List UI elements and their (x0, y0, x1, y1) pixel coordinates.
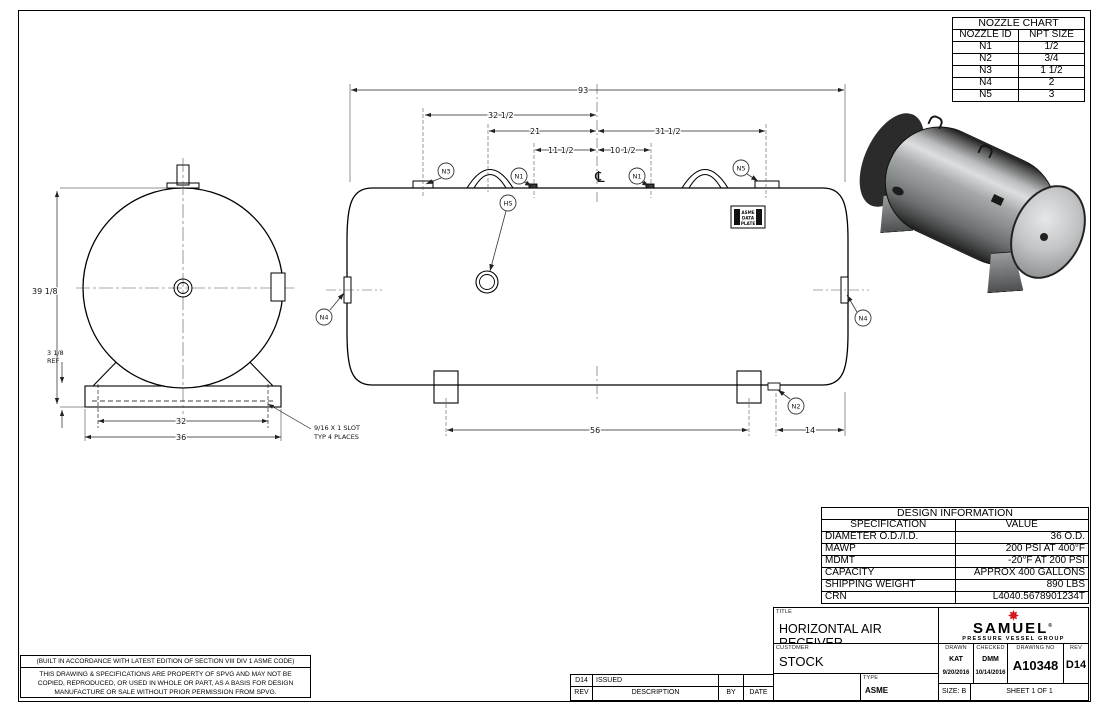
dim-saddle-ref: REF (47, 357, 60, 365)
data-plate-line3: PLATE (741, 221, 756, 226)
table-row: SHIPPING WEIGHT890 LBS (822, 580, 1089, 592)
table-row: DIAMETER O.D./I.D.36 O.D. (822, 532, 1089, 544)
value-cell: 36 O.D. (955, 532, 1089, 544)
bubble-n3: N3 (442, 168, 451, 176)
spec-cell: CRN (822, 592, 956, 604)
dim-cl-to-n1-right: 10 1/2 (610, 146, 636, 155)
dim-slot-spacing: 32 (176, 417, 186, 426)
spec-cell: SHIPPING WEIGHT (822, 580, 956, 592)
size-cell: SIZE: B (938, 683, 971, 701)
n5-coupling (755, 181, 779, 188)
type-cell: TYPE ASME (860, 673, 939, 701)
design-info-table: DESIGN INFORMATION SPECIFICATION VALUE D… (821, 507, 1089, 604)
dim-cl-to-n5: 31 1/2 (655, 127, 681, 136)
npt-size-cell: 1/2 (1019, 42, 1085, 54)
table-row: MAWP200 PSI AT 400°F (822, 544, 1089, 556)
data-plate-line1: ASME (741, 210, 754, 215)
value-cell: -20°F AT 200 PSI (955, 556, 1089, 568)
checked-label: CHECKED (974, 645, 1007, 651)
slot-note-line2: TYP 4 PLACES (313, 433, 359, 441)
dim-n2-to-end: 14 (805, 426, 815, 435)
side-view-shell (347, 188, 848, 385)
table-row: N42 (953, 78, 1085, 90)
side-view-centerlines (326, 84, 869, 436)
n1-coupling-left (529, 184, 537, 188)
logo-wordmark: SAMUEL® (973, 621, 1054, 636)
nozzle-bubbles (316, 160, 871, 414)
table-row: MDMT-20°F AT 200 PSI (822, 556, 1089, 568)
registered-mark: ® (1048, 623, 1054, 629)
type-label: TYPE (863, 675, 878, 681)
logo-tagline: PRESSURE VESSEL GROUP (962, 636, 1064, 642)
side-view (344, 170, 848, 404)
npt-size-cell: 2 (1019, 78, 1085, 90)
spec-cell: DIAMETER O.D./I.D. (822, 532, 956, 544)
engineering-drawing-sheet: { "nozzle_chart": { "title": "NOZZLE CHA… (0, 0, 1100, 712)
nozzle-leaders (330, 174, 857, 399)
customer-value: STOCK (779, 654, 824, 669)
nozzle-id-cell: N3 (953, 66, 1019, 78)
lifting-lug-left (467, 170, 513, 189)
dim-overall-height: 39 1/8 (32, 287, 58, 296)
npt-size-cell: 1 1/2 (1019, 66, 1085, 78)
dim-overall-length: 93 (578, 86, 588, 95)
property-note-line1: THIS DRAWING & SPECIFICATIONS ARE PROPER… (21, 670, 310, 679)
rev-label: REV (1064, 645, 1088, 651)
nozzle-chart-col-size: NPT SIZE (1019, 30, 1085, 42)
drawn-date: 9/20/2016 (939, 670, 973, 676)
slot-note-line1: 9/16 X 1 SLOT (314, 424, 360, 432)
bubble-n2: N2 (792, 403, 801, 411)
customer-label: CUSTOMER (776, 645, 809, 651)
value-cell: L4040.5678901234T (955, 592, 1089, 604)
bubble-n1-right: N1 (633, 173, 642, 181)
drawn-cell: DRAWN KAT 9/20/2016 (938, 643, 974, 684)
drawn-label: DRAWN (939, 645, 973, 651)
dim-cl-to-lug: 21 (530, 127, 540, 136)
spec-cell: CAPACITY (822, 568, 956, 580)
n2-fitting (768, 383, 780, 390)
drawing-no-cell: DRAWING NO A10348 (1007, 643, 1064, 684)
revision-date-header: DATE (743, 686, 774, 701)
table-row: N11/2 (953, 42, 1085, 54)
bubble-n5: N5 (737, 165, 746, 173)
revision-description-header: DESCRIPTION (592, 686, 719, 701)
nozzle-id-cell: N4 (953, 78, 1019, 90)
nozzle-id-cell: N2 (953, 54, 1019, 66)
value-cell: 200 PSI AT 400°F (955, 544, 1089, 556)
checked-cell: CHECKED DMM 10/14/2016 (973, 643, 1008, 684)
customer-cell: CUSTOMER STOCK (773, 643, 939, 674)
value-cell: 890 LBS (955, 580, 1089, 592)
design-info-col-spec: SPECIFICATION (822, 520, 956, 532)
tank-3d-head-port (1040, 233, 1048, 241)
dim-base-width: 36 (176, 433, 186, 442)
tank-3d-render (855, 90, 1100, 305)
nozzle-chart-col-id: NOZZLE ID (953, 30, 1019, 42)
title-label: TITLE (776, 609, 792, 615)
drawing-no-label: DRAWING NO (1008, 645, 1063, 651)
npt-size-cell: 3/4 (1019, 54, 1085, 66)
centerline-symbol: ℄ (594, 168, 605, 186)
rev-cell: REV D14 (1063, 643, 1089, 684)
property-note: THIS DRAWING & SPECIFICATIONS ARE PROPER… (20, 667, 311, 698)
nozzle-chart-title: NOZZLE CHART (953, 18, 1085, 30)
checked-by: DMM (974, 656, 1007, 663)
nozzle-id-cell: N1 (953, 42, 1019, 54)
end-view (76, 158, 294, 428)
design-info-title: DESIGN INFORMATION (822, 508, 1089, 520)
logo-cell: SAMUEL® PRESSURE VESSEL GROUP (938, 607, 1089, 644)
spec-cell: MDMT (822, 556, 956, 568)
bubble-hs: HS (503, 200, 512, 208)
title-cell: TITLE HORIZONTAL AIR RECEIVER (773, 607, 939, 644)
table-row: N23/4 (953, 54, 1085, 66)
bubble-n4-right: N4 (859, 315, 868, 323)
lifting-lug-right (682, 170, 728, 189)
table-row: CAPACITYAPPROX 400 GALLONS (822, 568, 1089, 580)
sheet-cell: SHEET 1 OF 1 (970, 683, 1089, 701)
revision-by-header: BY (718, 686, 744, 701)
dim-saddle-height: 3 1/8 (47, 349, 64, 357)
bubble-n1-left: N1 (515, 173, 524, 181)
drawn-by: KAT (939, 656, 973, 663)
sheet-value: SHEET 1 OF 1 (971, 688, 1088, 695)
end-view-side-fitting (271, 273, 285, 301)
dim-cl-to-n1-left: 11 1/2 (548, 146, 574, 155)
table-row: CRNL4040.5678901234T (822, 592, 1089, 604)
revision-rev-header: REV (570, 686, 593, 701)
checked-date: 10/14/2016 (974, 670, 1007, 676)
bubble-n4-left: N4 (320, 314, 329, 322)
spec-cell: MAWP (822, 544, 956, 556)
property-note-line2: COPIED, REPRODUCED, OR USED IN WHOLE OR … (21, 679, 310, 688)
table-row: N31 1/2 (953, 66, 1085, 78)
property-note-line3: MANUFACTURE OR SALE WITHOUT PRIOR PERMIS… (21, 688, 310, 697)
dim-saddle-spacing: 56 (590, 426, 600, 435)
design-info-col-value: VALUE (955, 520, 1089, 532)
type-value: ASME (865, 686, 888, 695)
dim-cl-to-n3: 32 1/2 (488, 111, 514, 120)
rev-value: D14 (1064, 659, 1088, 671)
size-value: SIZE: B (942, 688, 966, 695)
empty-cell (773, 673, 861, 701)
data-plate-line2: DATA (742, 216, 755, 221)
drawing-no-value: A10348 (1008, 658, 1063, 673)
value-cell: APPROX 400 GALLONS (955, 568, 1089, 580)
